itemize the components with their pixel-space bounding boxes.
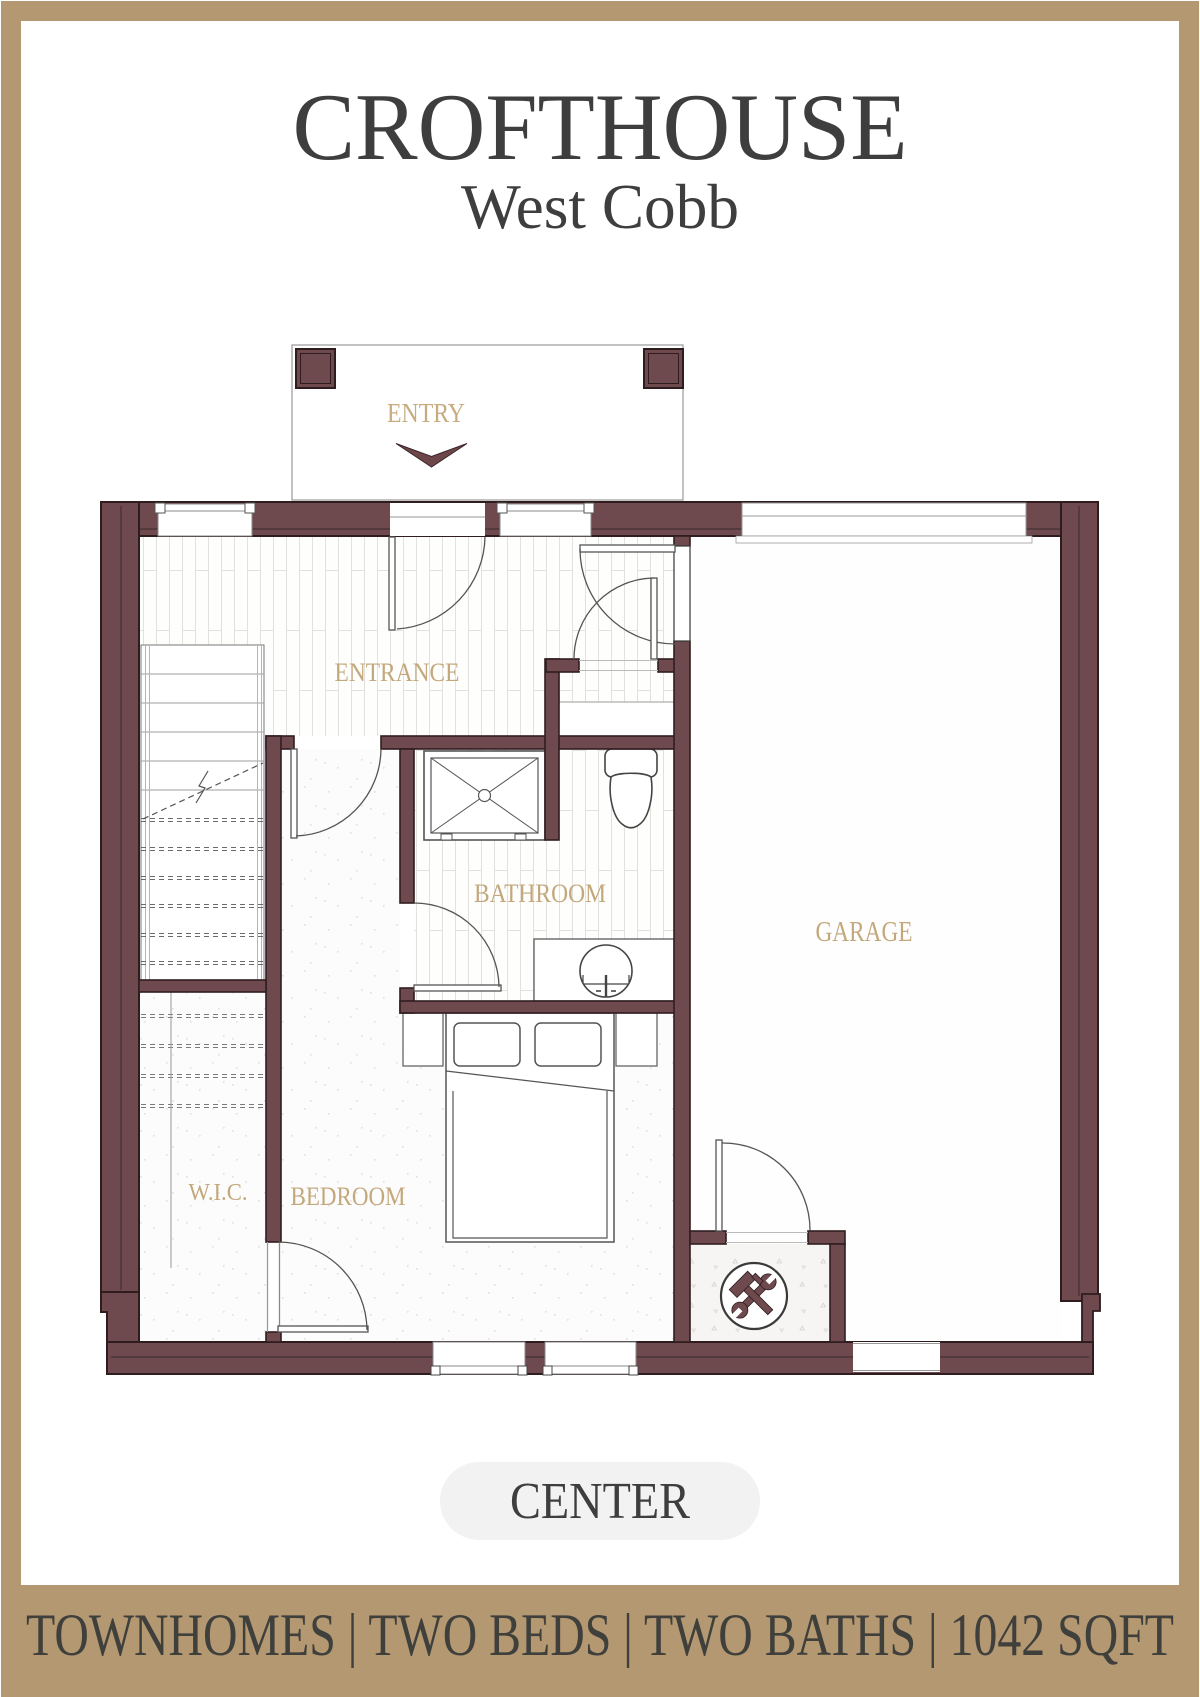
svg-text:BEDROOM: BEDROOM	[291, 1182, 406, 1211]
svg-text:West Cobb: West Cobb	[461, 172, 739, 242]
svg-text:TOWNHOMES | TWO BEDS | TWO BAT: TOWNHOMES | TWO BEDS | TWO BATHS | 1042 …	[26, 1602, 1174, 1668]
svg-text:ENTRANCE: ENTRANCE	[335, 658, 460, 687]
svg-text:ENTRY: ENTRY	[387, 398, 465, 428]
svg-text:BATHROOM: BATHROOM	[474, 879, 606, 908]
svg-text:W.I.C.: W.I.C.	[189, 1180, 248, 1206]
svg-text:GARAGE: GARAGE	[816, 917, 913, 948]
svg-text:CENTER: CENTER	[510, 1473, 690, 1530]
svg-text:CROFTHOUSE: CROFTHOUSE	[293, 74, 908, 180]
